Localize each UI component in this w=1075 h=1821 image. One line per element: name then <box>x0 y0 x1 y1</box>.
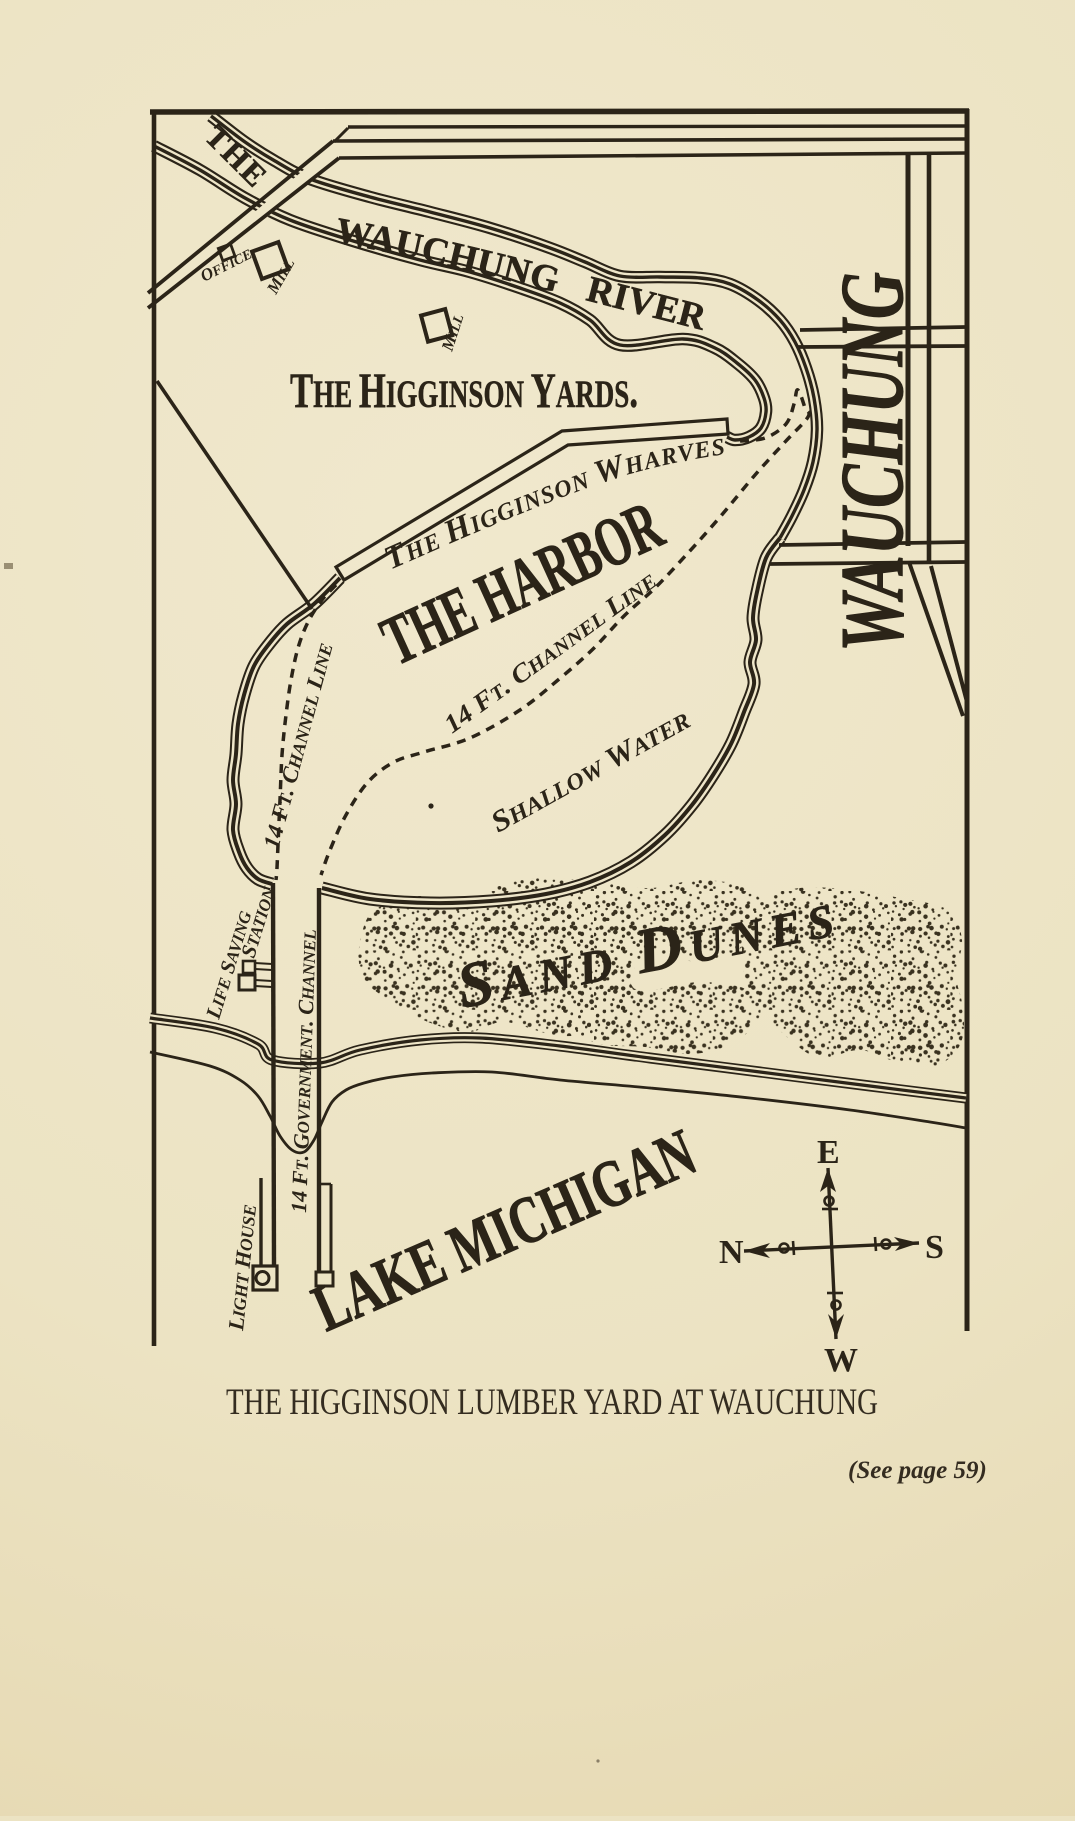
svg-text:WAUCHUNG: WAUCHUNG <box>823 272 922 652</box>
svg-text:E: E <box>817 1134 840 1171</box>
svg-text:(See page 59): (See page 59) <box>848 1457 987 1484</box>
svg-text:THE HIGGINSON LUMBER YARD AT W: THE HIGGINSON LUMBER YARD AT WAUCHUNG <box>226 1382 878 1423</box>
svg-text:S: S <box>925 1229 944 1266</box>
svg-text:N: N <box>719 1234 744 1271</box>
svg-text:W: W <box>824 1342 858 1379</box>
